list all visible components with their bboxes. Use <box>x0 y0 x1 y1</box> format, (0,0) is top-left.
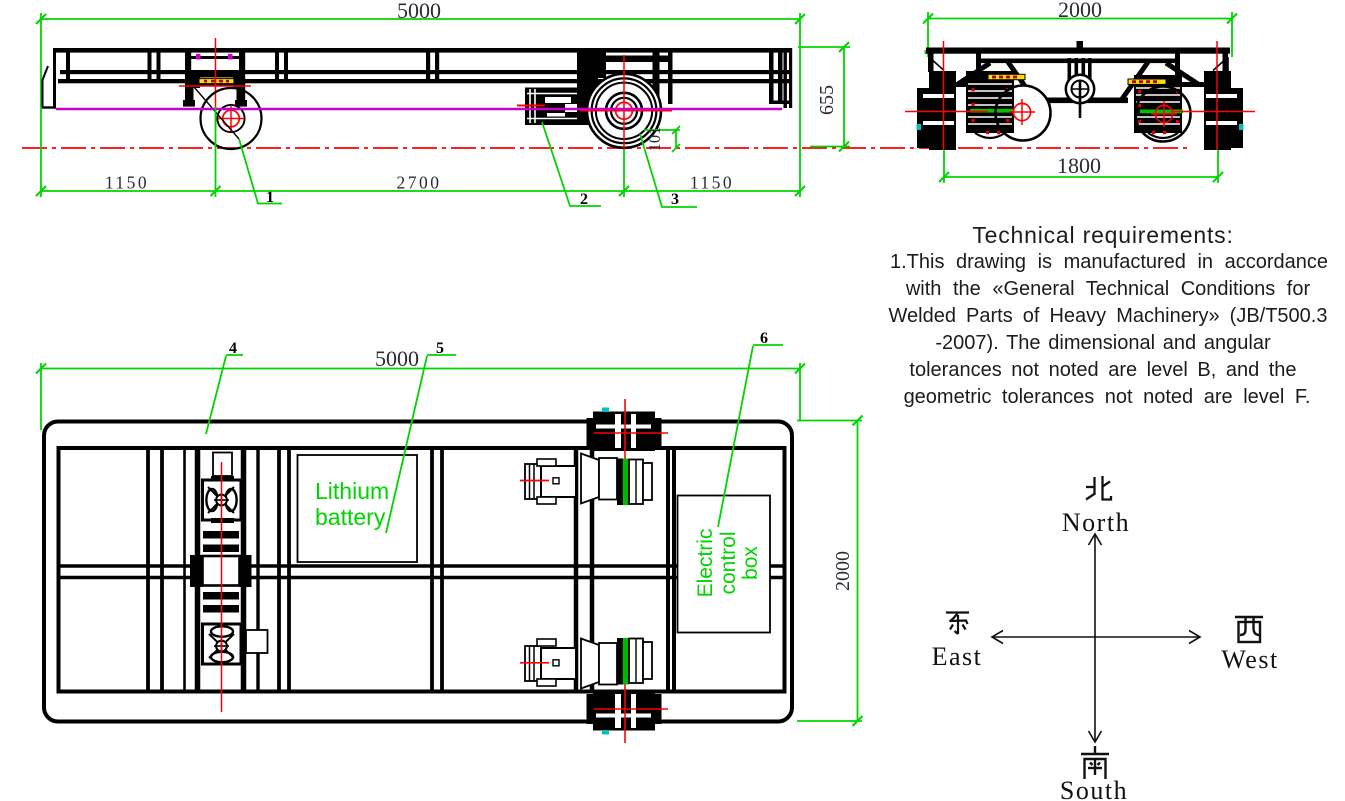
svg-text:box: box <box>739 546 762 580</box>
svg-text:101: 101 <box>645 127 664 152</box>
svg-text:2000: 2000 <box>1058 0 1102 22</box>
svg-text:Lithium: Lithium <box>315 478 389 504</box>
svg-text:battery: battery <box>315 504 386 530</box>
svg-text:1150: 1150 <box>690 173 734 193</box>
svg-text:5: 5 <box>436 340 444 357</box>
svg-text:2700: 2700 <box>397 173 442 193</box>
svg-text:5000: 5000 <box>397 0 441 23</box>
svg-text:1150: 1150 <box>105 173 149 193</box>
svg-text:655: 655 <box>816 85 838 115</box>
svg-text:with the «General Technical Co: with the «General Technical Conditions f… <box>905 278 1311 300</box>
svg-text:North: North <box>1062 508 1130 537</box>
svg-text:-2007). The dimensional and an: -2007). The dimensional and angular <box>935 332 1271 354</box>
svg-text:5000: 5000 <box>375 346 419 371</box>
svg-text:Technical requirements:: Technical requirements: <box>972 222 1233 248</box>
svg-text:1800: 1800 <box>1057 153 1101 178</box>
svg-text:1.This drawing is manufactured: 1.This drawing is manufactured in accord… <box>890 251 1328 273</box>
svg-text:2000: 2000 <box>832 551 854 591</box>
svg-text:6: 6 <box>760 330 768 347</box>
svg-text:South: South <box>1060 776 1128 801</box>
svg-text:2: 2 <box>580 191 588 208</box>
svg-text:Electric: Electric <box>694 529 717 598</box>
svg-text:Welded Parts of Heavy Machiner: Welded Parts of Heavy Machinery» (JB/T50… <box>889 305 1328 327</box>
svg-text:tolerances not noted are level: tolerances not noted are level B, and th… <box>909 359 1296 381</box>
svg-text:West: West <box>1221 645 1278 674</box>
svg-text:4: 4 <box>229 340 237 357</box>
svg-text:3: 3 <box>671 191 679 208</box>
svg-text:East: East <box>932 642 983 671</box>
svg-text:geometric tolerances not noted: geometric tolerances not noted are level… <box>904 386 1311 408</box>
svg-text:control: control <box>717 531 740 594</box>
